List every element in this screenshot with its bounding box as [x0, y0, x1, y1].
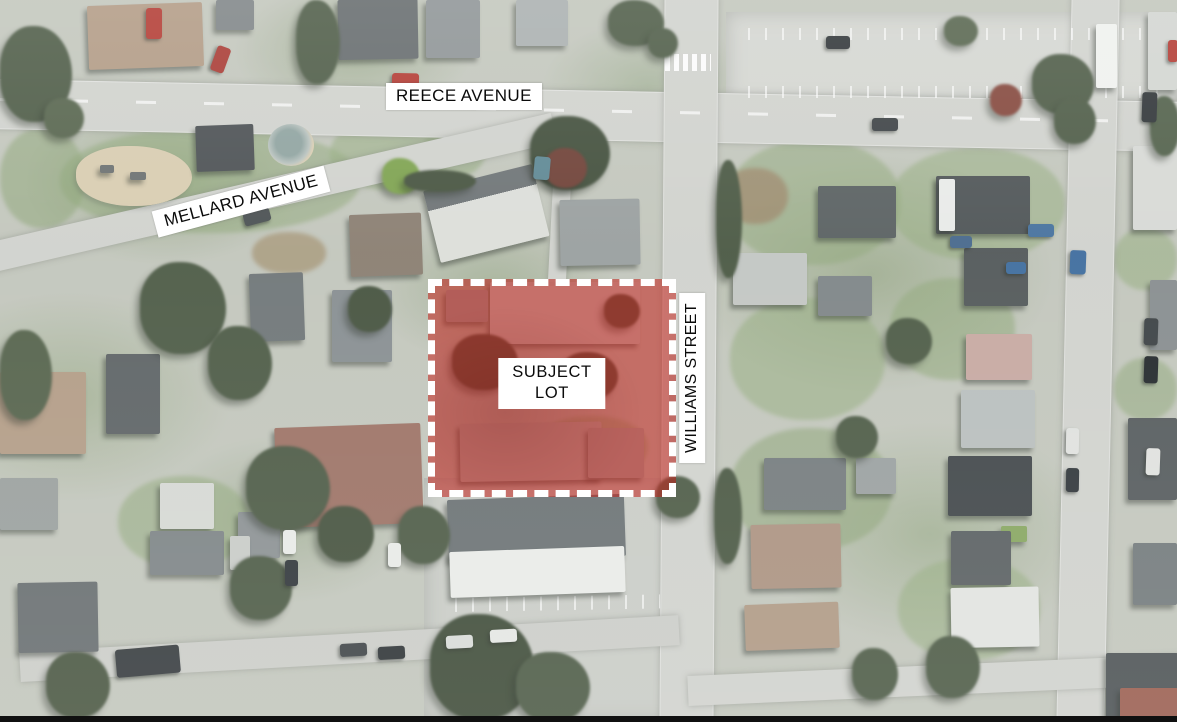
building-roof [964, 248, 1028, 306]
building-roof [449, 546, 625, 598]
building-roof [1096, 24, 1117, 88]
aerial-map: SUBJECT LOT REECE AVENUE MELLARD AVENUE … [0, 0, 1177, 722]
building-roof [818, 186, 896, 238]
building-roof [744, 602, 840, 651]
tree-canopy [44, 98, 84, 138]
building-roof [426, 0, 480, 58]
car [378, 646, 406, 660]
building-roof [516, 0, 568, 46]
tree-canopy [545, 148, 587, 188]
lawn-patch [730, 298, 885, 420]
tree-canopy [944, 16, 978, 46]
building-roof [856, 458, 896, 494]
tree-canopy [852, 648, 898, 700]
lawn-patch [0, 128, 85, 228]
car [146, 8, 162, 39]
building-roof [195, 124, 255, 172]
building-roof [733, 253, 807, 305]
building-roof [939, 179, 955, 231]
tree-canopy [404, 170, 476, 192]
subject-lot-label-line2: LOT [512, 383, 591, 404]
tree-canopy [246, 446, 330, 530]
car [446, 635, 474, 649]
building-roof [337, 0, 418, 60]
tree-canopy [990, 84, 1022, 116]
car [872, 118, 898, 131]
tree-canopy [1054, 98, 1096, 144]
building-roof [764, 458, 846, 510]
crosswalk-williams [665, 54, 711, 71]
car [533, 156, 551, 180]
building-roof [559, 199, 640, 266]
building-roof [966, 334, 1032, 380]
building-roof [948, 456, 1032, 516]
tree-canopy [230, 556, 292, 620]
tree-canopy [318, 506, 374, 562]
tree-canopy [648, 28, 678, 58]
car [1144, 318, 1159, 345]
building-roof [951, 531, 1011, 585]
building-roof [961, 390, 1035, 448]
car [1006, 262, 1026, 274]
dirt-patch [252, 232, 326, 274]
tree-canopy [886, 318, 932, 364]
tree-canopy [46, 652, 110, 718]
building-roof [1133, 543, 1177, 605]
car [950, 236, 972, 248]
subject-lot-label-line1: SUBJECT [512, 362, 591, 383]
building-roof [1133, 146, 1177, 230]
building-roof [17, 582, 98, 653]
building-roof [349, 213, 423, 277]
playground-equipment [130, 172, 146, 180]
car [340, 643, 368, 657]
car [115, 644, 181, 677]
building-roof [0, 478, 58, 530]
building-roof [818, 276, 872, 316]
building-roof [106, 354, 160, 434]
street-label-williams-street: WILLIAMS STREET [679, 293, 705, 463]
map-bottom-border [0, 716, 1177, 722]
tree-canopy [836, 416, 878, 458]
playground-equipment [100, 165, 114, 173]
car [826, 36, 850, 49]
tree-canopy [0, 330, 52, 420]
car [283, 530, 296, 554]
car [1028, 224, 1054, 237]
car [1144, 356, 1159, 383]
tree-canopy [714, 468, 742, 564]
car [1146, 448, 1161, 475]
car [1066, 468, 1079, 492]
subject-lot-label: SUBJECT LOT [498, 358, 605, 409]
car [1070, 250, 1087, 275]
building-roof [750, 523, 841, 589]
subject-lot-overlay: SUBJECT LOT [428, 279, 676, 497]
tree-canopy [208, 326, 272, 400]
car [1141, 92, 1157, 123]
tree-canopy [348, 286, 392, 332]
tree-canopy [296, 0, 340, 84]
tree-canopy [716, 160, 742, 278]
car [285, 560, 298, 586]
building-roof [150, 531, 224, 575]
tree-canopy [926, 636, 980, 698]
building-roof [216, 0, 254, 30]
building-roof [160, 483, 214, 529]
car [490, 629, 518, 643]
car [388, 543, 401, 567]
tree-canopy [516, 652, 590, 722]
street-label-reece-avenue: REECE AVENUE [386, 83, 542, 110]
car [1066, 428, 1079, 454]
car [1168, 40, 1177, 62]
tree-canopy [398, 506, 450, 564]
car [210, 45, 232, 74]
park-pond [268, 124, 314, 166]
